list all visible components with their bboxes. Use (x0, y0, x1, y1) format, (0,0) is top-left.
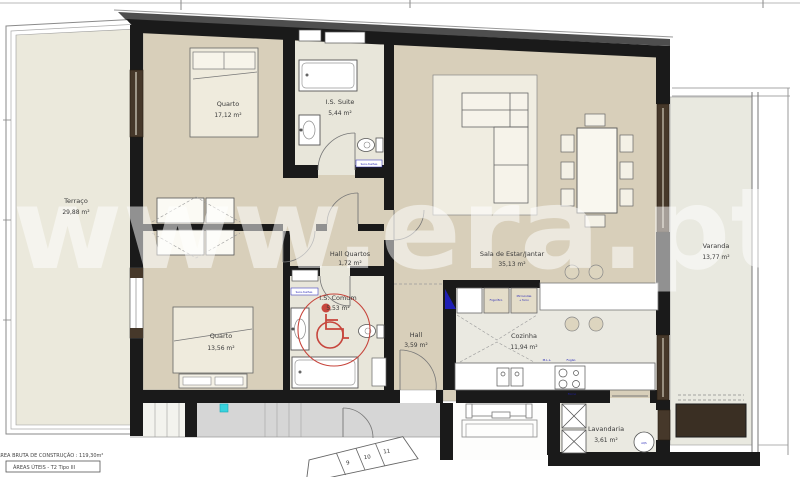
water-heater-label: AQS (641, 441, 647, 445)
toilet-icon (359, 325, 385, 339)
room-area-quarto1: 17,12 m² (214, 112, 242, 119)
room-area-terraco: 29,88 m² (62, 209, 90, 216)
floor-plan-page: 9 10 11 (0, 0, 800, 477)
bed-icon (190, 48, 258, 137)
room-label-quarto1: Quarto (217, 100, 239, 108)
room-label-quarto2: Quarto (210, 332, 232, 340)
room-label-hall-quartos: Hall Quartos (330, 250, 371, 258)
suite-niche-1 (299, 30, 321, 41)
oven-label: Forno (568, 392, 577, 396)
stairs-sketch: 9 10 11 (302, 435, 419, 477)
useful-areas-text: ÁREAS ÚTEIS - T2 Tipo III (13, 464, 75, 471)
entry-lobby (453, 403, 547, 460)
stair-step-11: 11 (383, 449, 391, 456)
room-label-hall: Hall (410, 331, 423, 339)
suite-niche-2 (325, 32, 365, 43)
common-corridor (130, 403, 443, 438)
room-area-quarto2: 13,56 m² (207, 345, 235, 352)
room-label-lavandaria: Lavandaria (588, 425, 624, 433)
footer: ÁREA BRUTA DE CONSTRUÇÃO : 119,30m² ÁREA… (0, 452, 103, 472)
stove-label: Fogão (566, 358, 575, 362)
washing-machine-icon (562, 404, 586, 428)
room-area-varanda: 13,77 m² (702, 254, 730, 261)
room-area-hall-quartos: 1,72 m² (338, 260, 362, 267)
room-area-is-comum: 5,53 m² (326, 305, 350, 312)
dishwasher-label: M.L.L. (543, 358, 552, 362)
washbasin-icon (291, 308, 309, 350)
laundry-balcony-door (658, 410, 670, 440)
gross-area-text: ÁREA BRUTA DE CONSTRUÇÃO : 119,30m² (0, 452, 103, 459)
room-area-cozinha: 11,94 m² (510, 344, 538, 351)
room-area-hall: 3,59 m² (404, 342, 428, 349)
fridge-label: Frigorífico (490, 298, 503, 302)
bathtub-icon (292, 357, 358, 388)
bathtub-icon (299, 60, 357, 91)
lobby-bench (466, 404, 532, 418)
room-label-sala: Sala de Estar/Jantar (480, 250, 545, 258)
room-label-is-suite: I.S. Suite (326, 98, 355, 106)
washbasin-icon (299, 115, 320, 145)
dryer-icon (562, 430, 586, 453)
toilet-icon (358, 138, 384, 152)
dimension-ruler (0, 0, 800, 10)
room-label-varanda: Varanda (703, 242, 730, 250)
stair-step-10: 10 (364, 454, 372, 461)
floor-plan-svg: 9 10 11 (0, 0, 800, 477)
room-area-sala: 35,13 m² (498, 261, 526, 268)
bath-shelf (372, 358, 386, 386)
room-area-lavandaria: 3,61 m² (594, 437, 618, 444)
watermark: www.era.pt (13, 165, 788, 295)
room-label-cozinha: Cozinha (511, 332, 537, 340)
microwave-label-2: + forno (519, 298, 529, 302)
utility-marker (220, 404, 228, 412)
room-label-is-comum: I.S. Comum (319, 294, 357, 302)
room-label-terraco: Terraço (63, 197, 88, 205)
room-area-is-suite: 5,44 m² (328, 110, 352, 117)
